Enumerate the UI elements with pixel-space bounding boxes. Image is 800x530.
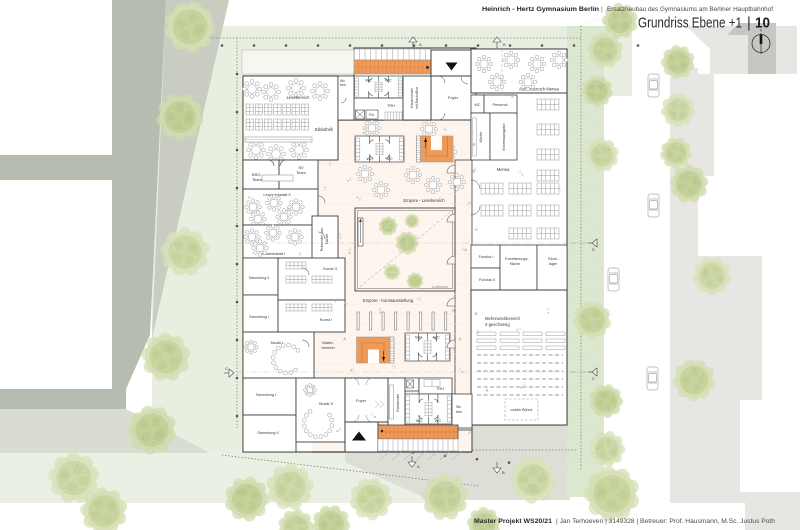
svg-text:Kunst II: Kunst II (323, 266, 337, 271)
svg-text:Fundus I: Fundus I (479, 255, 494, 259)
svg-text:Foyer: Foyer (448, 95, 459, 100)
svg-text:Luftraum: Luftraum (432, 284, 448, 289)
svg-text:| Jan Terhoeven | 3149328 | Be: | Jan Terhoeven | 3149328 | Betreuer: Pr… (556, 518, 775, 525)
svg-text:Mensa: Mensa (497, 167, 510, 172)
svg-text:Sammlung I: Sammlung I (256, 393, 276, 397)
svg-text:Grundriss Ebene +1: Grundriss Ebene +1 (638, 16, 742, 32)
svg-text:Essensausgabe: Essensausgabe (502, 123, 506, 150)
svg-text:Foyer: Foyer (356, 398, 367, 403)
svg-text:Team: Team (252, 177, 262, 182)
svg-text:Lernwerkstatt II: Lernwerkstatt II (263, 192, 290, 197)
svg-text:|: | (747, 16, 751, 32)
svg-text:Stuhl-: Stuhl- (548, 257, 559, 261)
svg-text:Sammlung II: Sammlung II (257, 431, 278, 435)
svg-text:WC: WC (433, 335, 440, 340)
svg-text:B: B (502, 470, 505, 475)
svg-text:Musik II: Musik II (319, 401, 333, 406)
svg-text:Master Projekt WS20/21: Master Projekt WS20/21 (474, 518, 552, 525)
svg-text:WC: WC (416, 418, 423, 423)
svg-text:Heinrich - Hertz Gymnasium Ber: Heinrich - Hertz Gymnasium Berlin (482, 6, 599, 13)
svg-text:Mehrzweckbereich: Mehrzweckbereich (485, 316, 521, 321)
svg-text:Küche: Küche (479, 132, 483, 143)
svg-text:|: | (601, 6, 603, 13)
svg-text:C: C (592, 376, 595, 381)
svg-text:Empore - Kunstausstellung: Empore - Kunstausstellung (363, 298, 414, 303)
svg-text:Team: Team (296, 170, 306, 175)
svg-text:bereich: bereich (321, 345, 334, 350)
svg-text:beh.: beh. (340, 83, 347, 87)
svg-text:Kunst I: Kunst I (320, 317, 332, 322)
svg-text:Sammlung II: Sammlung II (249, 276, 270, 280)
svg-text:TRH: TRH (436, 387, 444, 391)
svg-text:TRH: TRH (387, 104, 395, 108)
svg-text:A: A (417, 464, 420, 469)
svg-text:D: D (592, 247, 595, 252)
svg-text:mit Backoffice: mit Backoffice (415, 87, 419, 109)
svg-text:lager: lager (549, 262, 558, 266)
svg-text:Hausmeister: Hausmeister (410, 87, 414, 108)
svg-text:B: B (503, 42, 506, 47)
svg-text:Personal: Personal (493, 103, 508, 107)
svg-text:PuL: PuL (369, 113, 375, 117)
svg-text:Sammlung I: Sammlung I (249, 315, 269, 319)
svg-text:A: A (419, 42, 422, 47)
svg-text:WC: WC (475, 103, 481, 107)
svg-text:2-geschossig: 2-geschossig (485, 322, 510, 327)
svg-text:WC: WC (365, 78, 372, 83)
svg-text:WC: WC (385, 78, 392, 83)
svg-text:Wc: Wc (456, 405, 461, 409)
svg-text:Fundus II: Fundus II (479, 278, 495, 282)
svg-text:WC: WC (366, 156, 373, 161)
svg-text:WC: WC (415, 335, 422, 340)
svg-text:küche: küche (325, 234, 329, 244)
svg-text:Lesebereich: Lesebereich (287, 95, 310, 100)
svg-text:Garderobe: Garderobe (396, 394, 400, 412)
svg-text:WC: WC (386, 156, 393, 161)
svg-text:fläche: fläche (510, 262, 520, 266)
svg-text:C: C (225, 366, 228, 371)
svg-text:Erweiterungs-: Erweiterungs- (505, 257, 529, 261)
svg-text:10: 10 (755, 16, 770, 32)
svg-text:Ersatzneubau des Gymnasiums am: Ersatzneubau des Gymnasiums am Berliner … (607, 6, 773, 13)
svg-text:beh.: beh. (456, 410, 463, 414)
svg-text:WC: WC (435, 418, 442, 423)
svg-text:mobile Bühne: mobile Bühne (511, 408, 533, 412)
svg-text:Präsentations-: Präsentations- (320, 226, 324, 251)
